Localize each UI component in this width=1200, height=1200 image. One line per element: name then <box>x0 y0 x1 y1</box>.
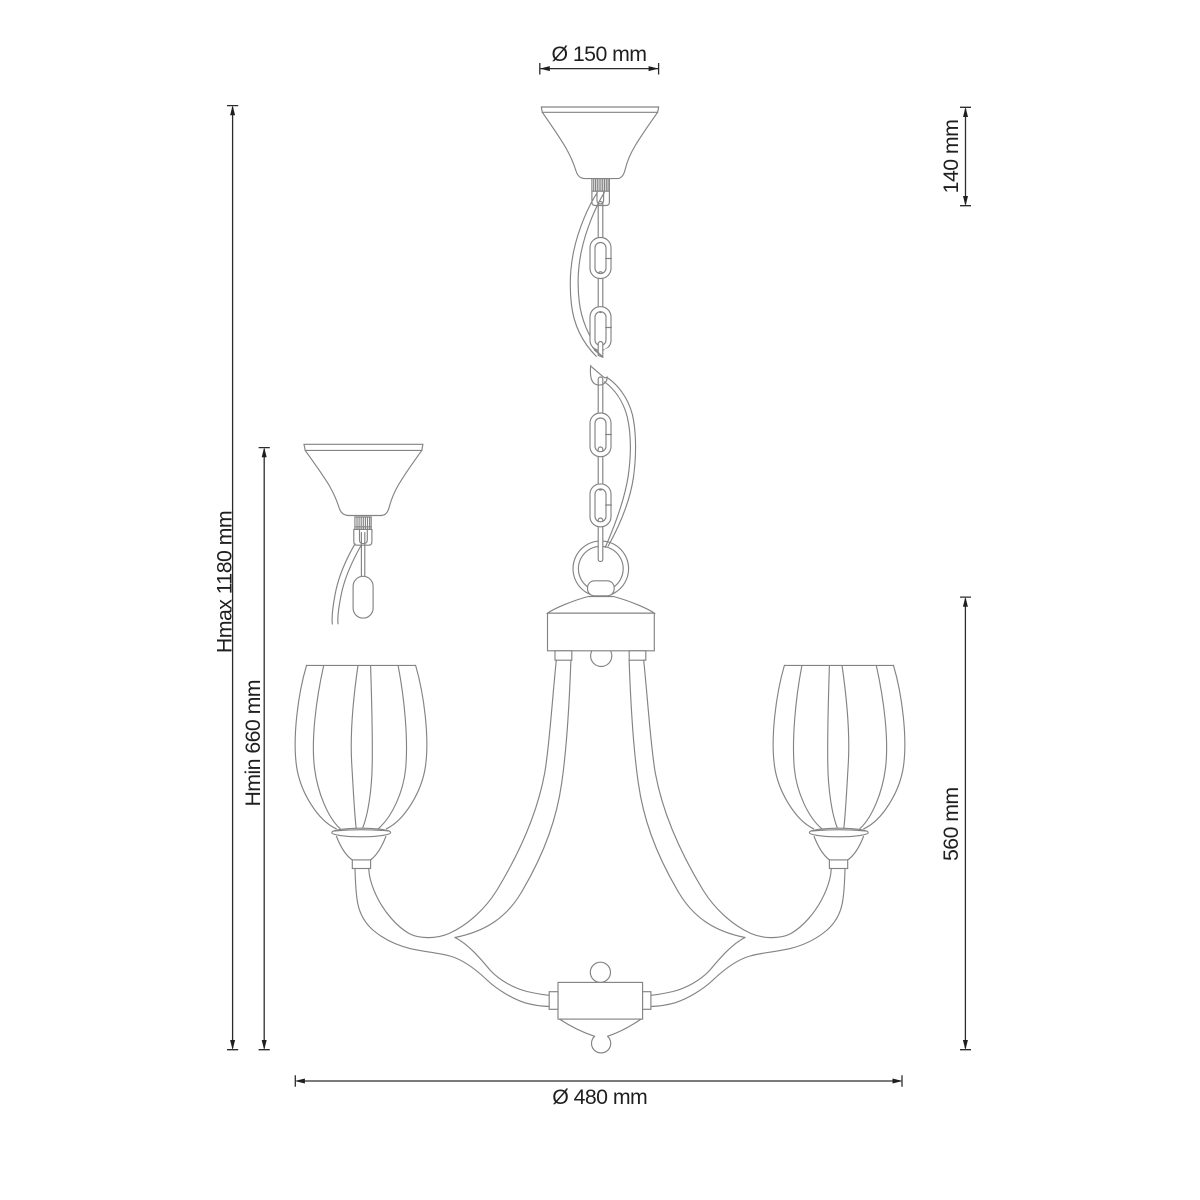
svg-text:Hmin 660 mm: Hmin 660 mm <box>241 680 265 807</box>
svg-text:140 mm: 140 mm <box>939 120 963 194</box>
svg-text:560 mm: 560 mm <box>939 787 963 861</box>
svg-text:Ø 480 mm: Ø 480 mm <box>552 1085 647 1109</box>
svg-text:Ø 150 mm: Ø 150 mm <box>551 42 646 66</box>
